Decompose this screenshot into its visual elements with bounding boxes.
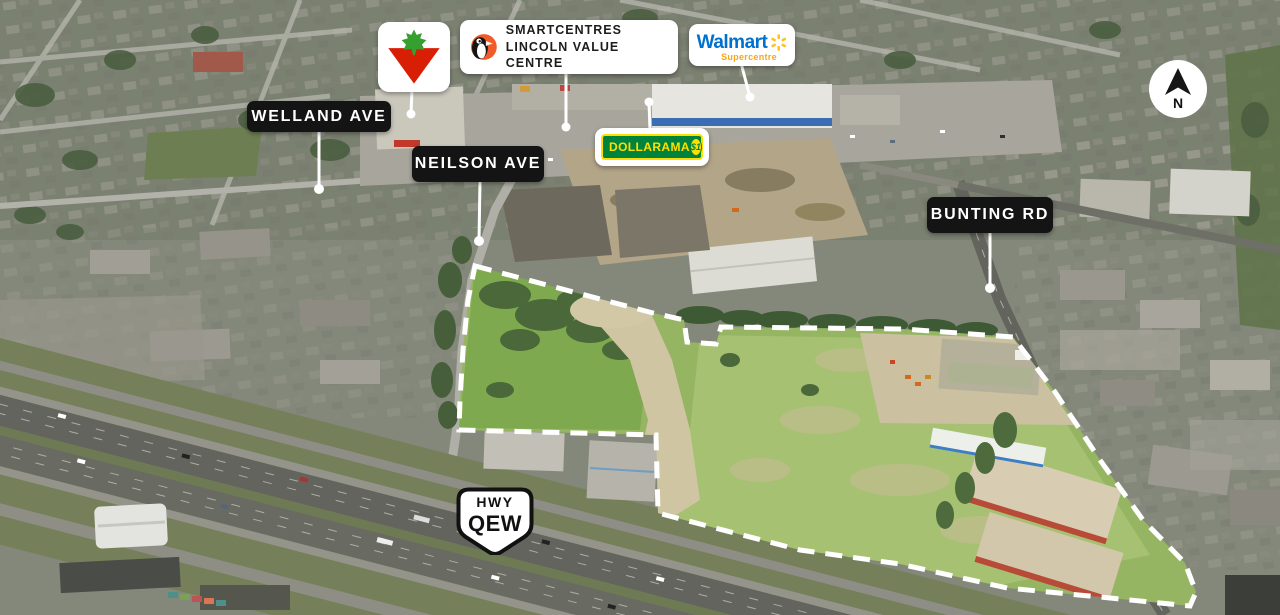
- dollarama-coin-icon: $1: [690, 138, 702, 156]
- dollarama-label-card: DOLLARAMA $1: [595, 128, 709, 166]
- north-compass: N: [1148, 59, 1208, 119]
- walmart-wordmark: Walmart: [697, 32, 768, 54]
- walmart-spark-icon: [770, 34, 787, 51]
- qew-text: QEW: [468, 511, 522, 537]
- apartment-building: [193, 52, 243, 72]
- hwy-qew-shield: HWY QEW: [456, 487, 534, 555]
- welland-ave-text: WELLAND AVE: [251, 108, 386, 126]
- walmart-label-card: Walmart Supercentre: [689, 24, 795, 66]
- bunting-rd-label: BUNTING RD: [927, 197, 1053, 233]
- bunting-rd-text: BUNTING RD: [931, 206, 1049, 224]
- aerial-photo: [0, 0, 1280, 615]
- dollarama-green-box: DOLLARAMA $1: [601, 134, 703, 160]
- smartcentres-line1: SMARTCENTRES: [506, 22, 668, 39]
- aerial-site-map: WELLAND AVE NEILSON AVE BUNTING RD SMART…: [0, 0, 1280, 615]
- hwy-text: HWY: [476, 494, 513, 510]
- welland-ave-label: WELLAND AVE: [247, 101, 391, 132]
- smartcentres-line2: LINCOLN VALUE CENTRE: [506, 39, 668, 73]
- compass-n-text: N: [1148, 95, 1208, 111]
- dollarama-wordmark: DOLLARAMA: [609, 140, 690, 154]
- canadian-tire-triangle-leaf-icon: [382, 26, 446, 88]
- penguin-icon: [470, 32, 498, 62]
- canadian-tire-logo-card: [378, 22, 450, 92]
- neilson-ave-label: NEILSON AVE: [412, 146, 544, 182]
- smartcentres-label-card: SMARTCENTRES LINCOLN VALUE CENTRE: [460, 20, 678, 74]
- neilson-ave-text: NEILSON AVE: [415, 155, 541, 173]
- walmart-supercentre-text: Supercentre: [707, 52, 777, 62]
